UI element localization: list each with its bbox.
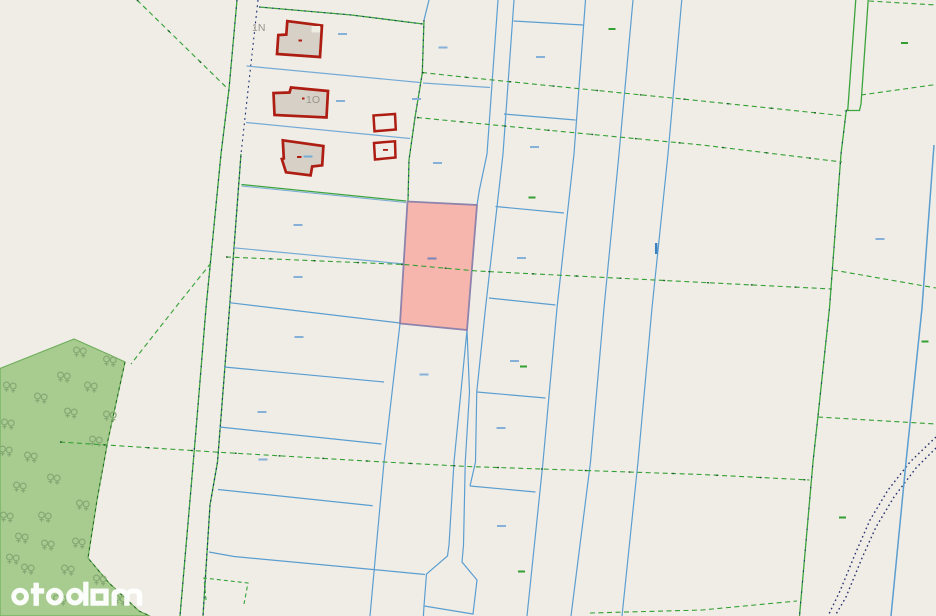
svg-text:1O: 1O	[306, 94, 320, 106]
svg-text:1N: 1N	[252, 22, 265, 34]
